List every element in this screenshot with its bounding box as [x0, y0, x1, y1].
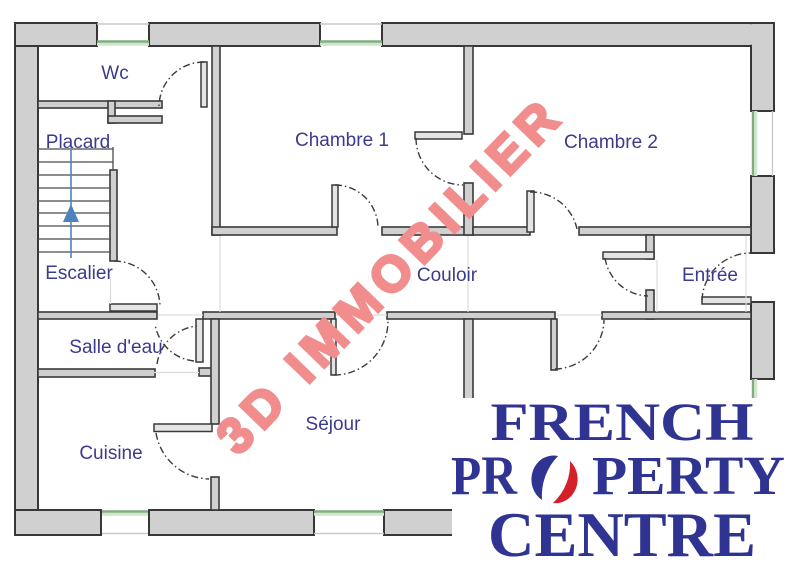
svg-text:Cuisine: Cuisine [79, 443, 142, 464]
svg-text:PERTY: PERTY [592, 445, 785, 506]
svg-text:Chambre 1: Chambre 1 [295, 130, 389, 151]
svg-text:Séjour: Séjour [306, 414, 362, 435]
svg-text:Salle d'eau: Salle d'eau [69, 337, 162, 358]
svg-text:Chambre 2: Chambre 2 [564, 132, 658, 153]
svg-text:PR: PR [451, 445, 518, 506]
svg-text:Placard: Placard [46, 132, 110, 153]
svg-text:FRENCH: FRENCH [491, 392, 754, 452]
svg-text:Entrée: Entrée [682, 265, 738, 286]
svg-text:CENTRE: CENTRE [488, 499, 756, 562]
svg-text:Escalier: Escalier [45, 263, 113, 284]
svg-text:Wc: Wc [101, 63, 128, 84]
